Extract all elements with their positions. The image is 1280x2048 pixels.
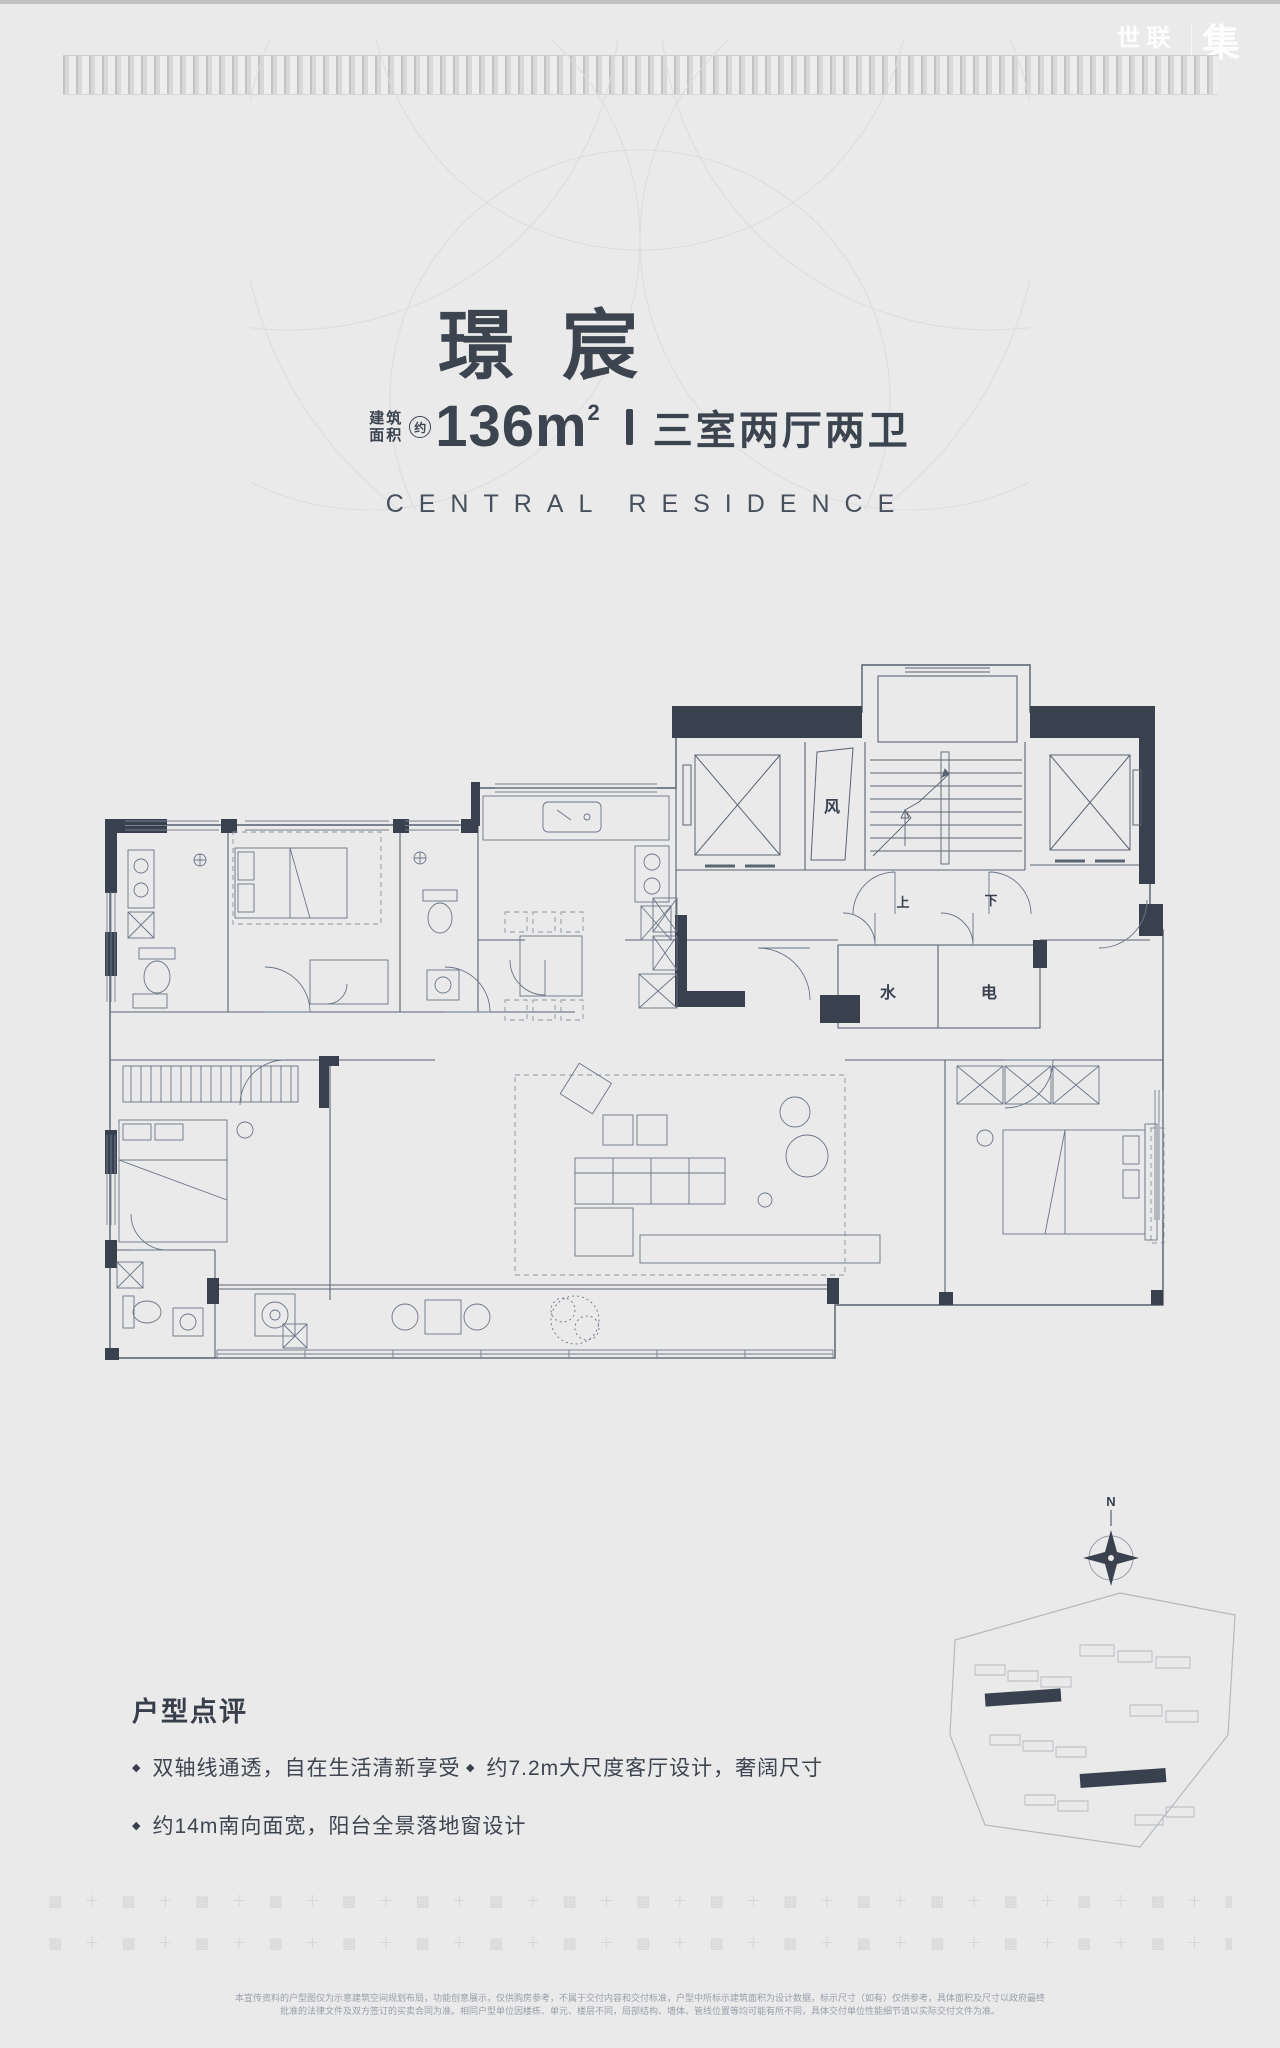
plan-furniture bbox=[117, 796, 1157, 1348]
label-up: 上 bbox=[896, 895, 909, 910]
room-layout-text: 三室两厅两卫 bbox=[653, 398, 911, 456]
brand-logo-divider bbox=[1191, 25, 1192, 55]
review-bullet-3: ◆ 约14m南向面宽，阳台全景落地窗设计 bbox=[132, 1810, 526, 1840]
review-bullet-3-text: 约14m南向面宽，阳台全景落地窗设计 bbox=[152, 1810, 526, 1840]
review-bullet-1: ◆ 双轴线通透，自在生活清新享受 bbox=[132, 1752, 460, 1782]
plan-dashed-outlines bbox=[233, 832, 1164, 1275]
poster-page: 世联 worldunion.com 集 璟 宸 建筑 面积 约 136m 2 bbox=[0, 0, 1280, 2048]
disclaimer-line-2: 批准的法律文件及双方签订的买卖合同为准。相同户型单位因楼栋、单元、楼层不同，局部… bbox=[220, 2005, 1060, 2018]
diamond-bullet-icon: ◆ bbox=[132, 1819, 141, 1832]
disclaimer-line-1: 本宣传资料的户型图仅为示意建筑空间规划布局，功能创意展示，仅供购房参考，不属于交… bbox=[220, 1992, 1060, 2005]
review-bullet-2-text: 约7.2m大尺度客厅设计，奢阔尺寸 bbox=[486, 1752, 823, 1782]
plan-labels: 风 水 电 bbox=[824, 798, 997, 1002]
compass-icon: N bbox=[1080, 1492, 1142, 1597]
area-prefix-1: 建筑 bbox=[369, 410, 403, 427]
top-edge-line bbox=[0, 0, 1280, 4]
legal-disclaimer: 本宣传资料的户型图仅为示意建筑空间规划布局，功能创意展示，仅供购房参考，不属于交… bbox=[220, 1992, 1060, 2018]
subtitle-en: CENTRAL RESIDENCE bbox=[0, 490, 1280, 519]
floorplan-drawing: 风 水 电 上 下 bbox=[105, 660, 1165, 1360]
label-water: 水 bbox=[880, 983, 897, 1002]
door-arcs bbox=[131, 872, 1147, 1250]
page-title: 璟 宸 bbox=[0, 284, 1178, 394]
plan-interior-walls bbox=[110, 668, 1163, 1358]
area-value: 136m bbox=[435, 398, 587, 456]
review-bullet-1-text: 双轴线通透，自在生活清新享受 bbox=[152, 1752, 460, 1782]
site-plan-highlighted-buildings bbox=[985, 1688, 1167, 1788]
review-bullet-2: ◆ 约7.2m大尺度客厅设计，奢阔尺寸 bbox=[466, 1752, 823, 1782]
area-superscript: 2 bbox=[588, 400, 600, 426]
spec-divider-bar bbox=[626, 409, 633, 445]
title-char-2: 宸 bbox=[562, 284, 638, 394]
label-vent: 风 bbox=[824, 798, 840, 816]
area-prefix: 建筑 面积 bbox=[369, 410, 403, 445]
compass-north-label: N bbox=[1106, 1494, 1115, 1509]
area-prefix-2: 面积 bbox=[369, 427, 403, 444]
label-electric: 电 bbox=[981, 983, 997, 1002]
diamond-bullet-icon: ◆ bbox=[132, 1761, 141, 1774]
plan-structural-walls bbox=[105, 706, 1163, 1360]
ornamental-band-bottom: ▩ ＋ ▩ ＋ ▩ ＋ ▩ ＋ ▩ ＋ ▩ ＋ ▩ ＋ ▩ ＋ ▩ ＋ ▩ ＋ … bbox=[48, 1926, 1232, 1962]
brand-logo-cn-text: 世联 bbox=[1116, 18, 1176, 53]
ornamental-band-top: ▩ ＋ ▩ ＋ ▩ ＋ ▩ ＋ ▩ ＋ ▩ ＋ ▩ ＋ ▩ ＋ ▩ ＋ ▩ ＋ … bbox=[48, 1884, 1232, 1920]
area-spec-line: 建筑 面积 约 136m 2 三室两厅两卫 bbox=[0, 398, 1280, 456]
staircase bbox=[870, 752, 1022, 864]
decorative-strip bbox=[63, 55, 1218, 95]
approx-badge: 约 bbox=[409, 416, 431, 438]
diamond-bullet-icon: ◆ bbox=[466, 1761, 475, 1774]
title-char-1: 璟 bbox=[438, 284, 514, 394]
label-down: 下 bbox=[984, 893, 997, 908]
elevator-shafts bbox=[683, 755, 1141, 866]
review-heading: 户型点评 bbox=[132, 1690, 248, 1729]
site-plan-map bbox=[930, 1585, 1250, 1875]
plan-stair-labels: 上 下 bbox=[896, 893, 997, 910]
